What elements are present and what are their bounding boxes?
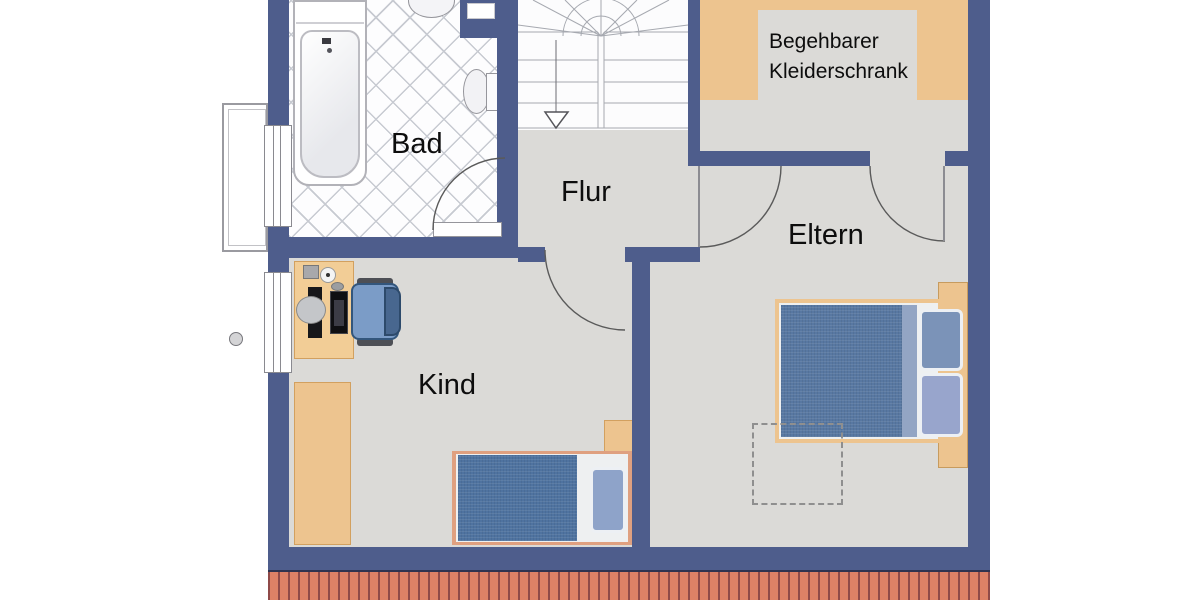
bathtub-edge	[296, 22, 364, 24]
wall-eltern-top-stub	[945, 151, 968, 166]
desk-speaker	[303, 265, 319, 279]
room-label-bad: Bad	[391, 128, 443, 161]
kind-wardrobe	[294, 382, 351, 545]
room-label-kleiderschrank: Begehbarer Kleiderschrank	[769, 27, 908, 87]
wardrobe-shelving-left	[700, 0, 758, 100]
room-label-kind: Kind	[418, 369, 476, 402]
double-bed-pillow-top	[919, 309, 963, 371]
balcony-outline-inner	[228, 109, 266, 246]
wall-kind-eltern-top	[625, 247, 700, 262]
office-chair-back	[384, 287, 401, 336]
double-bed-pillow-bottom	[919, 373, 963, 437]
room-label-eltern: Eltern	[788, 219, 864, 252]
monitor-screen	[334, 300, 344, 326]
staircase	[518, 0, 688, 130]
roof-edge-shingles	[268, 570, 990, 600]
double-bed-blanket	[781, 305, 902, 437]
kleiderschrank-line2: Kleiderschrank	[769, 57, 908, 87]
rain-pipe	[229, 332, 243, 346]
floor-plan: Bad Flur Eltern Kind Begehbarer Kleiders…	[0, 0, 1200, 600]
window-kind	[264, 272, 292, 373]
wall-flur-kind-stub	[518, 247, 545, 262]
wardrobe-shelving-right	[917, 0, 968, 100]
wall-bad-stairs	[497, 0, 518, 258]
single-bed-blanket	[458, 455, 577, 541]
bathtub-faucet	[322, 38, 331, 44]
wall-kind-eltern	[632, 262, 650, 547]
wall-bad-bottom	[268, 237, 518, 258]
dashed-planning-area	[752, 423, 843, 505]
wall-outer-right	[968, 0, 990, 570]
nightstand	[604, 420, 635, 452]
double-bed-blanket-fold	[902, 305, 917, 437]
chimney-niche	[467, 3, 495, 19]
single-bed-pillow	[590, 467, 626, 533]
bathtub-drain	[327, 48, 332, 53]
wall-stairs-closet	[688, 0, 700, 166]
desk-plate	[296, 296, 326, 324]
wall-outer-bottom	[268, 547, 990, 570]
desk-cd-hole	[326, 273, 330, 277]
computer-mouse	[331, 282, 344, 291]
room-label-flur: Flur	[561, 176, 611, 209]
bad-door-panel	[433, 222, 502, 237]
kleiderschrank-line1: Begehbarer	[769, 27, 908, 57]
wardrobe-shelving-top	[758, 0, 917, 10]
wall-eltern-top	[688, 151, 870, 166]
window-bad	[264, 125, 292, 227]
